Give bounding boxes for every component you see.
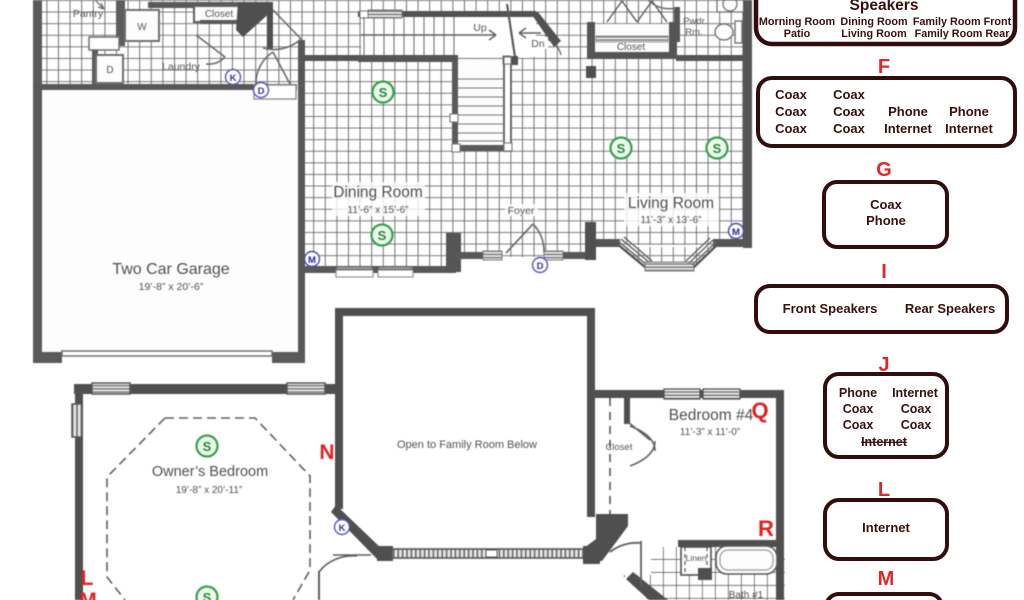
svg-text:Coax: Coax: [775, 121, 808, 136]
svg-text:Phone: Phone: [839, 386, 877, 400]
svg-text:19’-8” x 20’-11”: 19’-8” x 20’-11”: [176, 485, 243, 496]
svg-text:Dn: Dn: [531, 38, 545, 50]
svg-text:Closet: Closet: [205, 9, 234, 20]
svg-text:11’-3” x 13’-6”: 11’-3” x 13’-6”: [641, 215, 702, 226]
svg-text:Closet: Closet: [606, 442, 633, 453]
svg-text:Coax: Coax: [901, 402, 932, 416]
svg-text:Pantry: Pantry: [73, 8, 104, 20]
svg-text:I: I: [881, 261, 887, 283]
svg-text:L: L: [878, 479, 890, 501]
svg-text:M: M: [79, 589, 97, 600]
svg-text:M: M: [732, 227, 740, 238]
svg-text:11’-6” x 15’-6”: 11’-6” x 15’-6”: [348, 205, 409, 216]
svg-text:N: N: [319, 441, 334, 464]
svg-text:Coax: Coax: [870, 197, 903, 212]
svg-text:Coax: Coax: [843, 418, 874, 432]
svg-text:Laundry: Laundry: [162, 61, 201, 73]
svg-text:D: D: [537, 261, 544, 272]
svg-text:Pwdr.: Pwdr.: [683, 16, 707, 27]
svg-text:Closet: Closet: [617, 42, 646, 53]
svg-text:Internet: Internet: [862, 520, 910, 535]
svg-text:Owner’s Bedroom: Owner’s Bedroom: [152, 464, 268, 480]
svg-text:Phone: Phone: [888, 104, 928, 119]
svg-text:R: R: [758, 516, 774, 541]
svg-text:Internet: Internet: [945, 121, 993, 136]
svg-text:K: K: [339, 523, 346, 534]
svg-text:Foyer: Foyer: [508, 205, 535, 217]
svg-text:Coax: Coax: [901, 418, 932, 432]
svg-text:W: W: [137, 22, 147, 33]
svg-text:Phone: Phone: [866, 213, 906, 228]
svg-text:Coax: Coax: [833, 121, 866, 136]
svg-text:Dining Room: Dining Room: [840, 16, 907, 28]
svg-text:Two Car Garage: Two Car Garage: [112, 261, 229, 278]
svg-text:Coax: Coax: [843, 402, 874, 416]
svg-text:Coax: Coax: [833, 104, 866, 119]
svg-text:M: M: [308, 255, 316, 266]
svg-text:Bedroom #4: Bedroom #4: [669, 407, 754, 424]
svg-text:Family Room Rear: Family Room Rear: [915, 28, 1011, 40]
svg-text:Linen: Linen: [686, 553, 707, 563]
svg-text:M: M: [878, 568, 895, 590]
svg-text:Rm.: Rm.: [685, 27, 702, 38]
svg-text:Dining Room: Dining Room: [333, 184, 423, 201]
svg-text:Family Room Front: Family Room Front: [913, 16, 1012, 28]
svg-text:Open to Family Room Below: Open to Family Room Below: [397, 439, 537, 451]
svg-text:Coax: Coax: [775, 104, 808, 119]
svg-text:Internet: Internet: [892, 386, 939, 400]
svg-text:11’-3” x 11’-0”: 11’-3” x 11’-0”: [680, 427, 740, 438]
svg-text:S: S: [379, 85, 388, 100]
svg-text:D: D: [106, 65, 113, 76]
svg-text:S: S: [378, 228, 387, 243]
svg-text:S: S: [203, 439, 212, 454]
svg-text:D: D: [258, 86, 265, 97]
svg-text:K: K: [230, 73, 237, 84]
svg-text:Rear Speakers: Rear Speakers: [905, 301, 995, 316]
svg-text:Living Room: Living Room: [841, 28, 906, 40]
svg-text:19’-8” x 20’-6”: 19’-8” x 20’-6”: [139, 281, 204, 293]
svg-text:Phone: Phone: [949, 104, 989, 119]
svg-text:Patio: Patio: [784, 28, 811, 40]
svg-text:S: S: [617, 141, 626, 156]
svg-text:F: F: [878, 56, 890, 78]
svg-text:Coax: Coax: [833, 87, 866, 102]
svg-text:Internet: Internet: [861, 435, 908, 449]
svg-text:Living Room: Living Room: [628, 195, 714, 212]
svg-text:Q: Q: [751, 398, 768, 423]
svg-text:S: S: [713, 141, 722, 156]
svg-text:Bath #1: Bath #1: [729, 590, 764, 600]
svg-text:Speakers: Speakers: [850, 0, 919, 14]
svg-text:Up: Up: [473, 22, 487, 34]
svg-text:S: S: [203, 590, 212, 600]
svg-text:Front Speakers: Front Speakers: [783, 301, 878, 316]
svg-text:G: G: [876, 159, 892, 181]
svg-text:Coax: Coax: [775, 87, 808, 102]
svg-text:Morning Room: Morning Room: [759, 16, 835, 28]
svg-text:Internet: Internet: [884, 121, 932, 136]
svg-text:L: L: [81, 567, 94, 590]
